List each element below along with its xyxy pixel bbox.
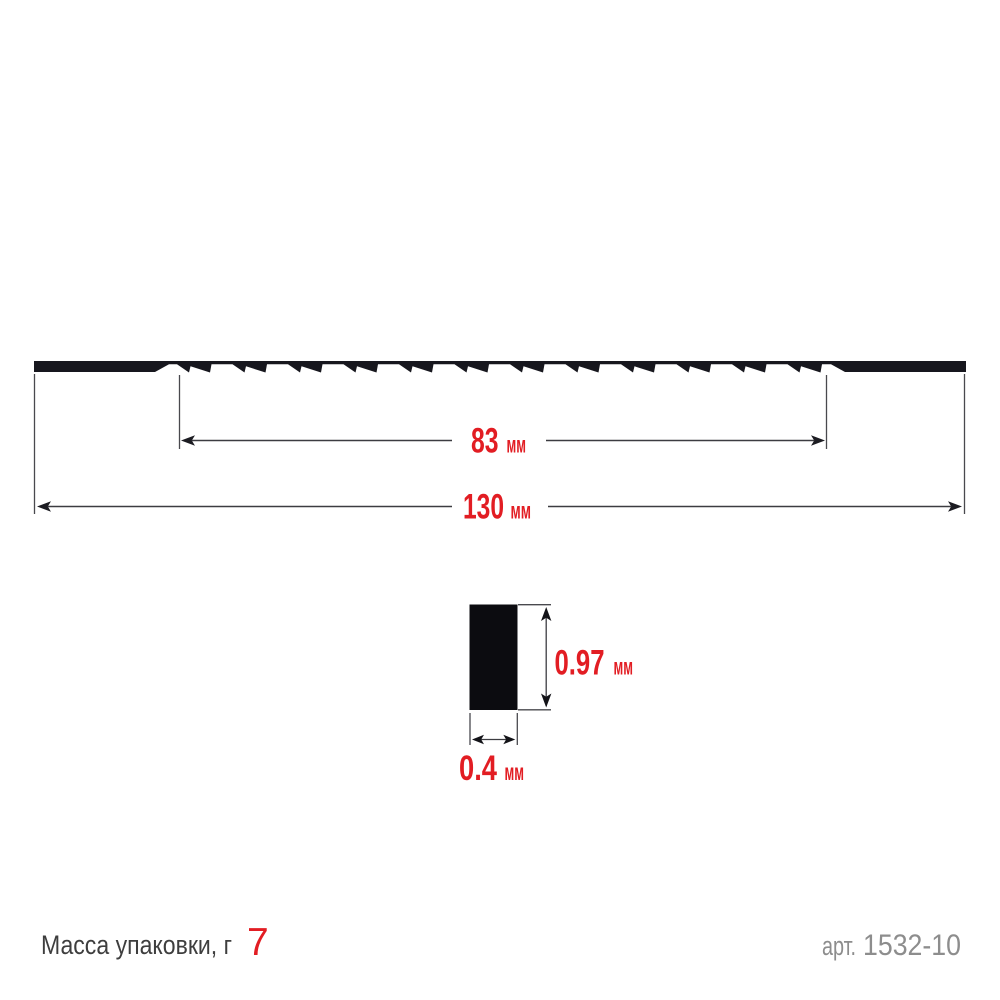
- svg-text:мм: мм: [507, 432, 527, 458]
- svg-text:0.97: 0.97: [555, 644, 605, 683]
- svg-text:мм: мм: [614, 654, 634, 680]
- svg-text:1532-10: 1532-10: [863, 929, 961, 962]
- svg-text:7: 7: [247, 921, 269, 964]
- svg-text:мм: мм: [511, 498, 532, 524]
- svg-text:Масса упаковки, г: Масса упаковки, г: [41, 930, 232, 960]
- svg-text:0.4: 0.4: [459, 749, 497, 788]
- svg-text:арт.: арт.: [822, 931, 856, 961]
- svg-text:мм: мм: [505, 759, 525, 785]
- svg-text:130: 130: [463, 488, 504, 527]
- svg-text:83: 83: [471, 422, 499, 461]
